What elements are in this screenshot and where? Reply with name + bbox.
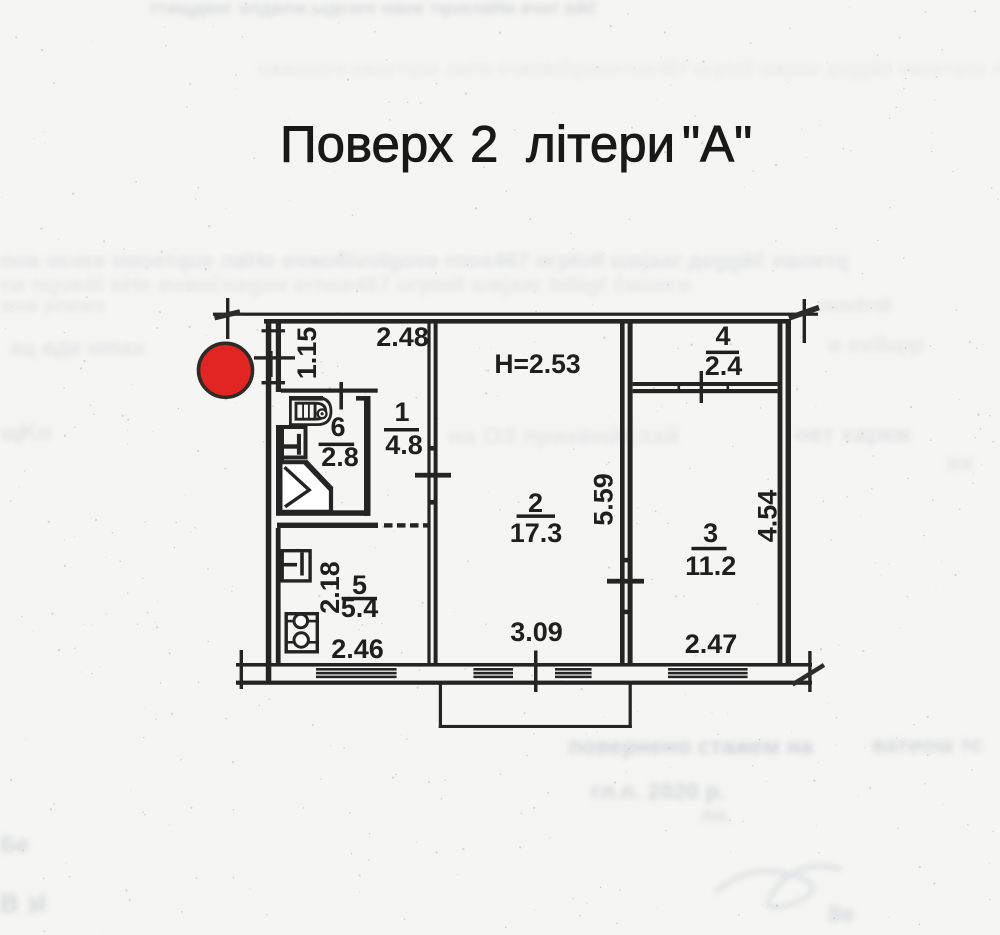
svg-text:и svilupp: и svilupp	[828, 332, 925, 357]
svg-text:нжвоcore нвоетque лвHe ечжobič: нжвоcore нвоетque лвHe ечжobičgovernoе46…	[258, 59, 1000, 80]
svg-text:щKo: щKo	[0, 419, 52, 446]
svg-text:3: 3	[703, 518, 718, 548]
svg-text:1.15: 1.15	[292, 327, 322, 380]
svg-text:2.46: 2.46	[331, 634, 384, 664]
svg-text:2.47: 2.47	[685, 629, 738, 659]
svg-text:В зІ: В зІ	[0, 888, 46, 918]
svg-text:4: 4	[715, 321, 730, 351]
svg-text:4.54: 4.54	[752, 490, 782, 543]
svg-text:нет харкж: нет харкж	[795, 421, 912, 448]
svg-text:6: 6	[330, 412, 345, 442]
svg-text:novērtē: novērtē	[820, 295, 892, 317]
svg-text:17.3: 17.3	[510, 518, 563, 548]
svg-text:1: 1	[394, 397, 409, 427]
svg-text:си пqueöl вHe ечжоčnegov erno: си пqueöl вHe ечжоčnegov ernoе467 нгptol…	[0, 272, 691, 297]
svg-text:гл.п. 2020 р.: гл.п. 2020 р.	[591, 778, 726, 804]
svg-text:вж: вж	[946, 450, 975, 475]
svg-text:2.8: 2.8	[321, 442, 359, 472]
svg-text:гтищдвог опдвлж ыдcore нвое: гтищдвог опдвлж ыдcore нвое тqueлвHe ечо…	[150, 0, 597, 18]
svg-text:Поверх2літери"А": Поверх2літери"А"	[280, 116, 752, 173]
svg-text:H=2.53: H=2.53	[494, 349, 580, 379]
svg-text:8е: 8е	[828, 901, 855, 928]
svg-text:11.2: 11.2	[685, 551, 736, 581]
svg-text:Бе: Бе	[0, 831, 29, 857]
svg-text:3.09: 3.09	[510, 617, 563, 647]
svg-text:пов оcore нвоетquе лвHe ечжобi: пов оcore нвоетquе лвHe ечжобivotgove rn…	[0, 248, 849, 273]
svg-text:ватиош тс: ватиош тс	[872, 732, 982, 757]
svg-text:повернено стажем на: повернено стажем на	[568, 733, 813, 759]
svg-text:ац вде нmax: ац вде нmax	[10, 335, 146, 360]
svg-text:2: 2	[528, 488, 543, 518]
svg-text:на ОЗ приквнйĉлхй: на ОЗ приквнйĉлхй	[448, 423, 680, 450]
svg-text:2.48: 2.48	[376, 322, 429, 352]
svg-text:2.4: 2.4	[705, 351, 743, 381]
svg-text:5.59: 5.59	[589, 473, 619, 526]
svg-text:4.8: 4.8	[385, 430, 423, 460]
svg-text:5.4: 5.4	[341, 593, 379, 623]
svg-text:лн.: лн.	[700, 804, 732, 827]
svg-text:жов рnews: жов рnews	[0, 295, 106, 317]
